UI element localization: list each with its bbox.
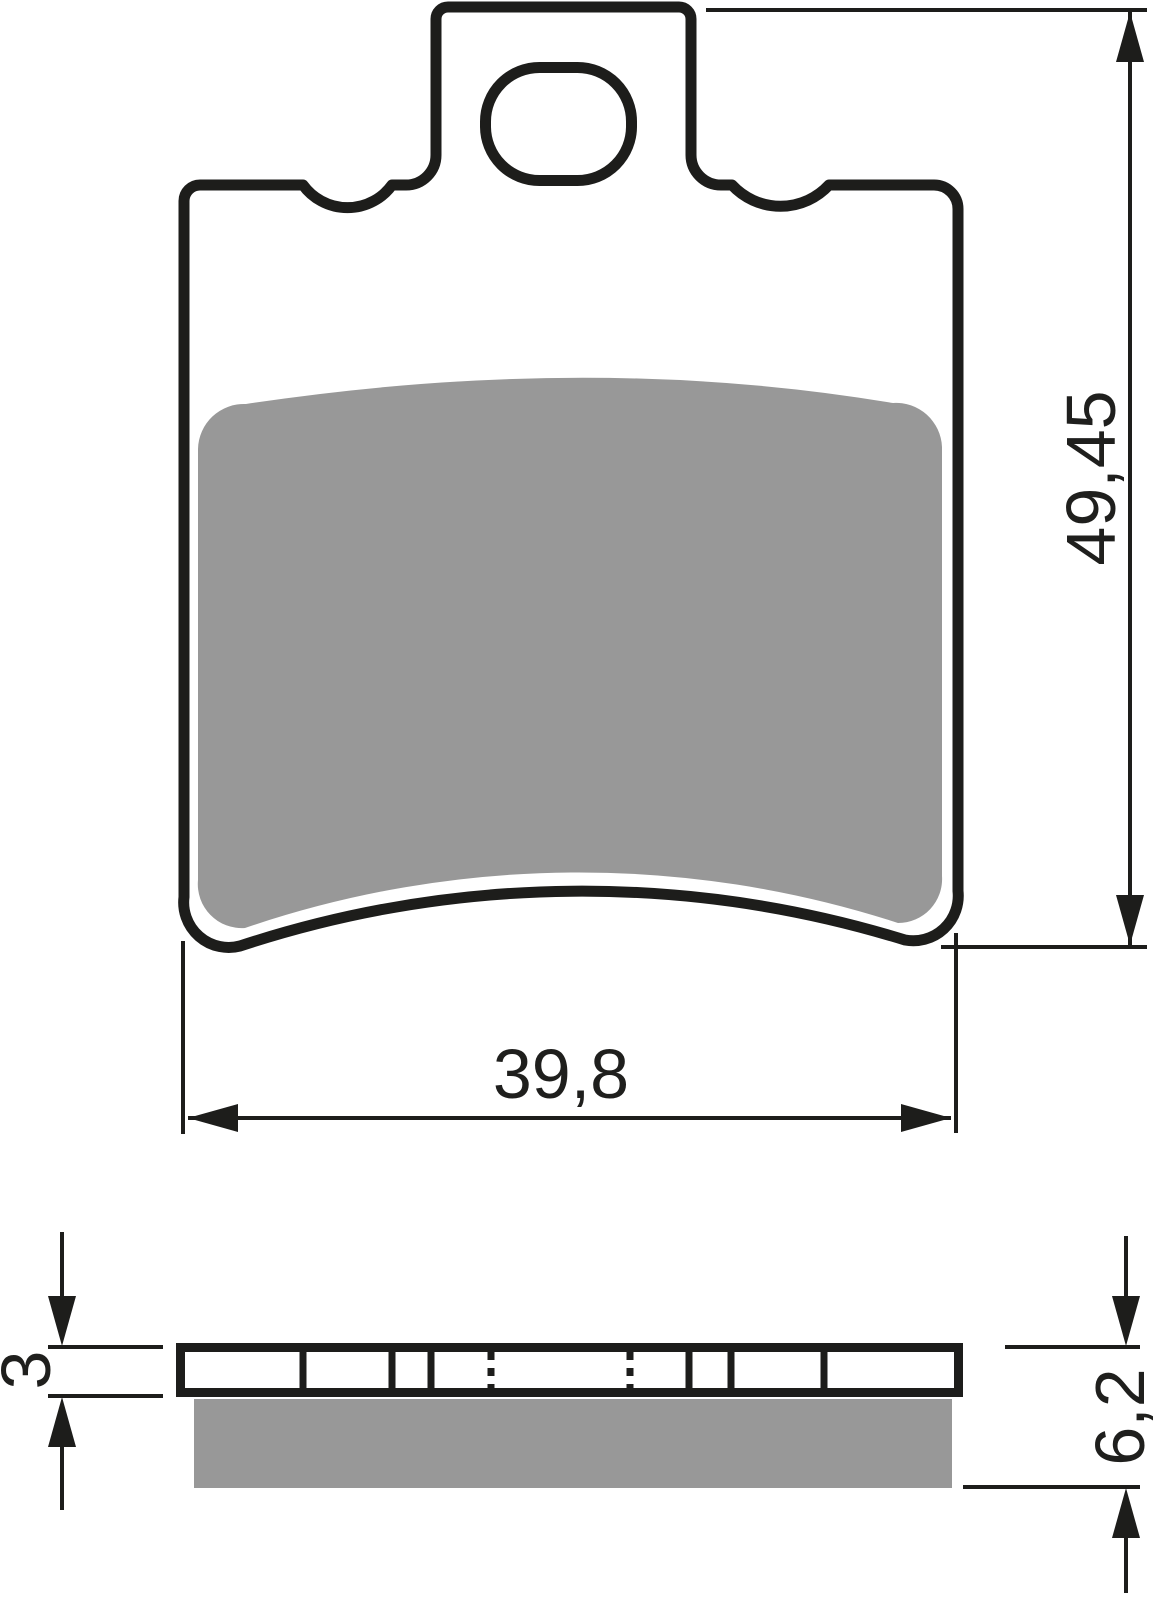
svg-text:3: 3: [0, 1351, 65, 1390]
svg-text:49,45: 49,45: [1052, 390, 1130, 565]
svg-text:6,2: 6,2: [1081, 1368, 1154, 1465]
svg-text:39,8: 39,8: [493, 1035, 629, 1113]
